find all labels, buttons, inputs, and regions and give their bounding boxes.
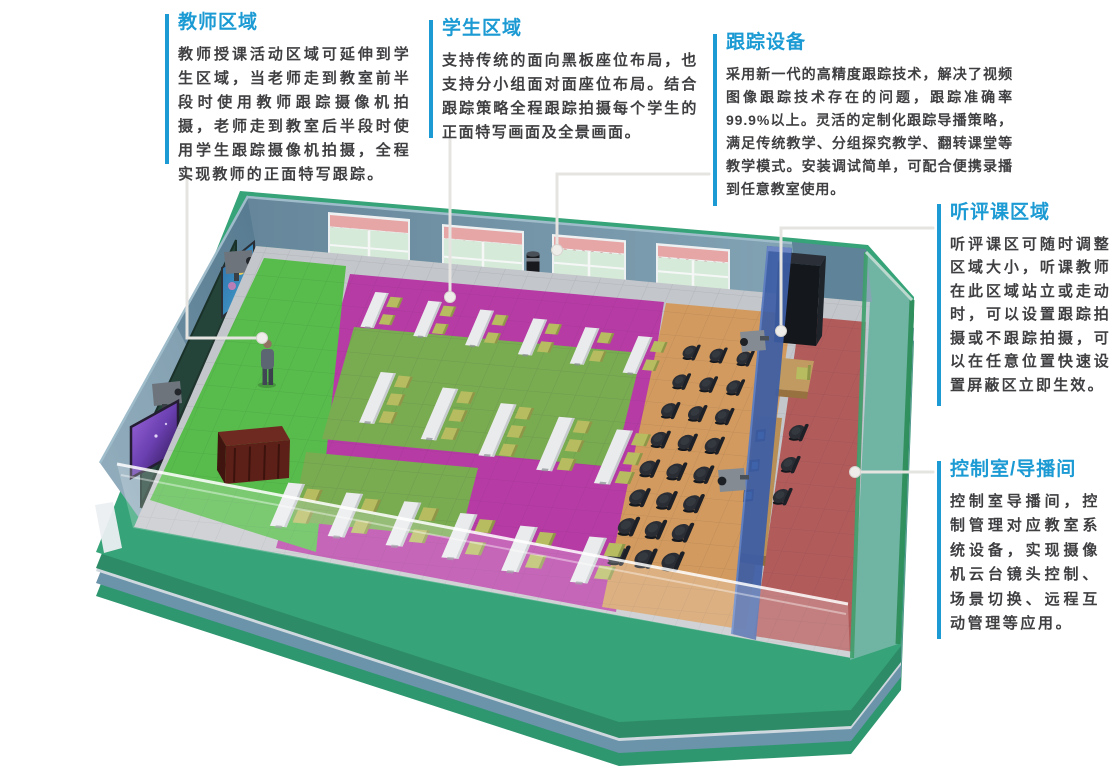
callout-control-room: 控制室/导播间 控制室导播间，控制管理对应教室系统设备，实现摄像机云台镜头控制、…: [937, 459, 1109, 637]
callout-title: 跟踪设备: [726, 32, 1015, 55]
accent-bar: [713, 34, 717, 206]
callout-title: 听评课区域: [950, 202, 1115, 225]
accent-bar: [165, 14, 169, 164]
callout-title: 教师区域: [178, 12, 411, 35]
partition-camera-icon: [718, 468, 749, 492]
callout-tracking-device: 跟踪设备 采用新一代的高精度跟踪技术，解决了视频图像跟踪技术存在的问题，跟踪准确…: [713, 32, 1015, 201]
tracking-camera-wall-icon: [527, 251, 540, 273]
callout-body: 采用新一代的高精度跟踪技术，解决了视频图像跟踪技术存在的问题，跟踪准确率99.9…: [726, 63, 1013, 201]
callout-body: 听评课区可随时调整区域大小，听课教师在此区域站立或走动时，可以设置跟踪拍摄或不跟…: [950, 233, 1111, 398]
callout-body: 教师授课活动区域可延伸到学生区域，当老师走到教室前半段时使用教师跟踪摄像机拍摄，…: [178, 43, 411, 187]
accent-bar: [937, 461, 941, 639]
callout-observation-area: 听评课区域 听评课区可随时调整区域大小，听课教师在此区域站立或走动时，可以设置跟…: [937, 202, 1115, 397]
callout-body: 控制室导播间，控制管理对应教室系统设备，实现摄像机云台镜头控制、场景切换、远程互…: [950, 490, 1100, 637]
accent-bar: [429, 20, 433, 138]
infographic-canvas: 教师区域 教师授课活动区域可延伸到学生区域，当老师走到教室前半段时使用教师跟踪摄…: [0, 0, 1116, 766]
callout-teacher-area: 教师区域 教师授课活动区域可延伸到学生区域，当老师走到教室前半段时使用教师跟踪摄…: [165, 12, 411, 187]
callout-student-area: 学生区域 支持传统的面向黑板座位布局，也支持分小组面对面座位布局。结合跟踪策略全…: [429, 18, 701, 145]
callout-title: 控制室/导播间: [950, 459, 1109, 482]
callout-title: 学生区域: [442, 18, 701, 41]
callout-body: 支持传统的面向黑板座位布局，也支持分小组面对面座位布局。结合跟踪策略全程跟踪拍摄…: [442, 49, 698, 145]
podium: [217, 426, 290, 484]
accent-bar: [937, 204, 941, 406]
